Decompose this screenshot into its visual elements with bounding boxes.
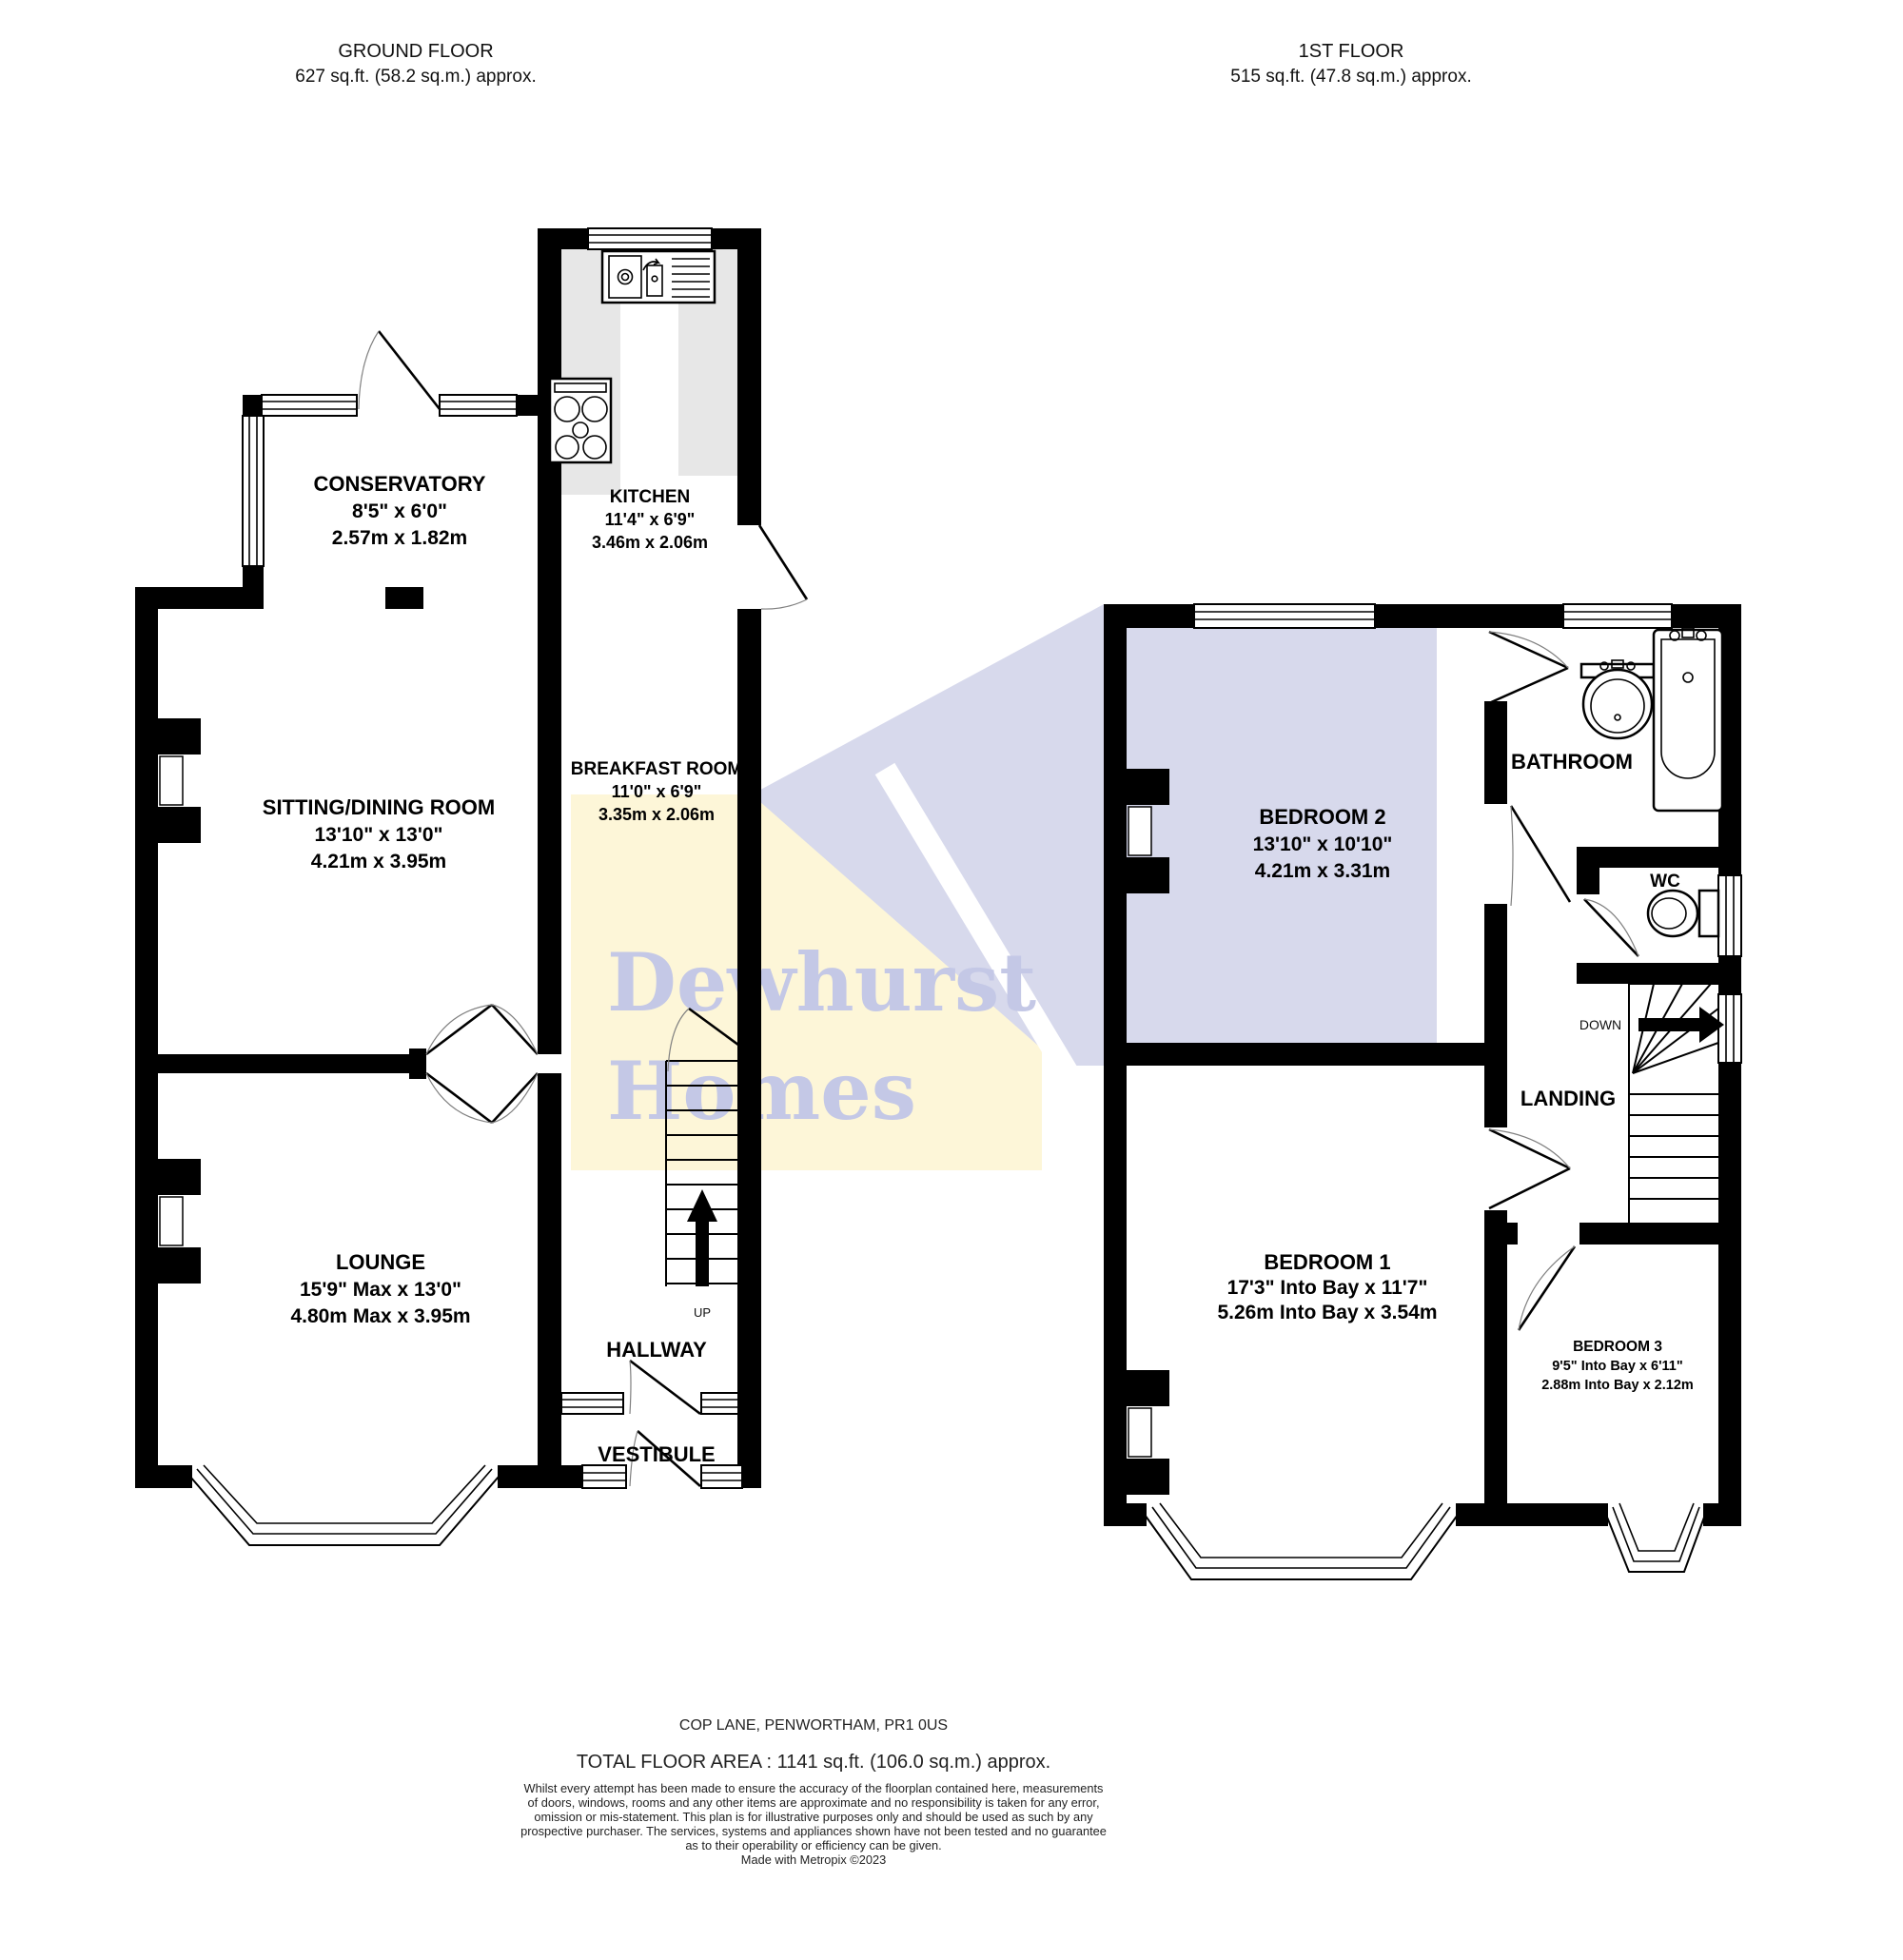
plan-headers: GROUND FLOOR 627 sq.ft. (58.2 sq.m.) app… <box>295 41 1471 87</box>
disclaimer-line-5: as to their operability or efficiency ca… <box>685 1838 941 1852</box>
sitting-dining-label: SITTING/DINING ROOM <box>263 795 495 819</box>
vestibule-label: VESTIBULE <box>598 1442 715 1466</box>
bathtub <box>1654 628 1722 811</box>
first-floor-labels: BEDROOM 2 13'10" x 10'10" 4.21m x 3.31m … <box>1217 750 1693 1393</box>
sitting-dining-dims-metric: 4.21m x 3.95m <box>311 851 446 872</box>
bedroom1-chimney-recess <box>1128 1408 1151 1457</box>
bedroom2-window <box>1194 604 1375 628</box>
vestibule-front-window-left <box>582 1465 626 1488</box>
ground-floor-labels: CONSERVATORY 8'5" x 6'0" 2.57m x 1.82m K… <box>263 472 742 1466</box>
kitchen-hob <box>550 379 611 462</box>
breakfast-room-dims-imperial: 11'0" x 6'9" <box>612 782 702 801</box>
floorplan-drawing: CONSERVATORY 8'5" x 6'0" 2.57m x 1.82m K… <box>0 0 1903 1960</box>
total-floor-area: TOTAL FLOOR AREA : 1141 sq.ft. (106.0 sq… <box>577 1752 1050 1773</box>
disclaimer-line-4: prospective purchaser. The services, sys… <box>520 1824 1107 1838</box>
kitchen-dims-metric: 3.46m x 2.06m <box>592 533 708 552</box>
first-floor-plan: BEDROOM 2 13'10" x 10'10" 4.21m x 3.31m … <box>1104 604 1741 1579</box>
sitting-lounge-double-doors <box>426 1005 538 1123</box>
conservatory-dims-imperial: 8'5" x 6'0" <box>352 500 447 522</box>
bathroom-label: BATHROOM <box>1511 750 1633 774</box>
lounge-dims-metric: 4.80m Max x 3.95m <box>290 1305 470 1327</box>
lounge-label: LOUNGE <box>336 1250 425 1274</box>
hallway-vestibule-window-right <box>701 1393 738 1414</box>
metropix-credit: Made with Metropix ©2023 <box>741 1852 886 1867</box>
property-address: COP LANE, PENWORTHAM, PR1 0US <box>679 1717 948 1734</box>
up-arrow-icon <box>687 1189 717 1286</box>
bedroom1-dims-imperial: 17'3" Into Bay x 11'7" <box>1227 1277 1428 1299</box>
bedroom2-chimney-recess <box>1128 807 1151 855</box>
stairs-down <box>1629 984 1724 1223</box>
first-floor-title: 1ST FLOOR <box>1299 41 1404 62</box>
disclaimer-line-2: of doors, windows, rooms and any other i… <box>527 1795 1099 1810</box>
wc-label: WC <box>1650 872 1680 892</box>
bedroom2-dims-metric: 4.21m x 3.31m <box>1255 860 1390 882</box>
plan-footer: COP LANE, PENWORTHAM, PR1 0US TOTAL FLOO… <box>520 1717 1107 1867</box>
bedroom3-label: BEDROOM 3 <box>1573 1339 1662 1355</box>
bedroom3-door <box>1519 1246 1575 1330</box>
ground-floor-title: GROUND FLOOR <box>338 41 493 62</box>
floorplan-page: Dewhurst Homes <box>0 0 1903 1960</box>
stairs-window <box>1718 994 1741 1063</box>
landing-label: LANDING <box>1520 1087 1616 1110</box>
sitting-dining-dims-imperial: 13'10" x 13'0" <box>314 824 442 846</box>
bedroom2-label: BEDROOM 2 <box>1259 805 1385 829</box>
wc-door <box>1584 899 1638 956</box>
stairs-up <box>666 1061 737 1286</box>
bedroom1-door <box>1489 1129 1570 1208</box>
bedroom3-dims-imperial: 9'5" Into Bay x 6'11" <box>1552 1359 1683 1374</box>
conservatory-top-window-right <box>440 395 517 416</box>
ground-floor-plan: CONSERVATORY 8'5" x 6'0" 2.57m x 1.82m K… <box>135 228 807 1545</box>
wc-window <box>1718 875 1741 956</box>
breakfast-room-label: BREAKFAST ROOM <box>571 759 743 779</box>
conservatory-side-window <box>243 416 264 566</box>
bedroom2-dims-imperial: 13'10" x 10'10" <box>1253 833 1393 855</box>
bedroom3-bay-window <box>1606 1503 1705 1572</box>
ground-floor-area: 627 sq.ft. (58.2 sq.m.) approx. <box>295 67 536 87</box>
disclaimer-line-1: Whilst every attempt has been made to en… <box>524 1781 1104 1795</box>
hallway-label: HALLWAY <box>606 1338 707 1362</box>
bedroom2-door <box>1511 806 1570 906</box>
bedroom3-dims-metric: 2.88m Into Bay x 2.12m <box>1541 1378 1694 1393</box>
conservatory-dims-metric: 2.57m x 1.82m <box>332 527 467 549</box>
lounge-dims-imperial: 15'9" Max x 13'0" <box>300 1279 461 1301</box>
kitchen-dims-imperial: 11'4" x 6'9" <box>605 510 696 529</box>
bedroom1-dims-metric: 5.26m Into Bay x 3.54m <box>1217 1302 1437 1323</box>
washbasin <box>1581 660 1654 738</box>
kitchen-sink <box>602 251 715 303</box>
hallway-vestibule-window-left <box>561 1393 623 1414</box>
toilet <box>1648 891 1718 936</box>
conservatory-top-window-left <box>262 395 357 416</box>
bathroom-door <box>1489 632 1568 703</box>
vestibule-front-window-right <box>701 1465 742 1488</box>
disclaimer-line-3: omission or mis-statement. This plan is … <box>534 1810 1093 1824</box>
conservatory-door <box>359 331 440 409</box>
bedroom1-bay-window <box>1145 1503 1458 1579</box>
sitting-room-chimney-recess <box>160 756 183 805</box>
kitchen-label: KITCHEN <box>610 487 690 507</box>
hallway-vestibule-door <box>630 1361 700 1414</box>
conservatory-label: CONSERVATORY <box>314 472 486 496</box>
down-label: DOWN <box>1579 1017 1621 1032</box>
kitchen-side-door <box>759 525 807 609</box>
lounge-bay-window <box>190 1465 499 1545</box>
lounge-chimney-recess <box>160 1197 183 1245</box>
first-floor-area: 515 sq.ft. (47.8 sq.m.) approx. <box>1230 67 1471 87</box>
bathroom-window <box>1563 604 1672 628</box>
up-label: UP <box>694 1305 711 1320</box>
breakfast-room-dims-metric: 3.35m x 2.06m <box>598 805 715 824</box>
bedroom1-label: BEDROOM 1 <box>1264 1250 1390 1274</box>
kitchen-window <box>588 228 712 249</box>
